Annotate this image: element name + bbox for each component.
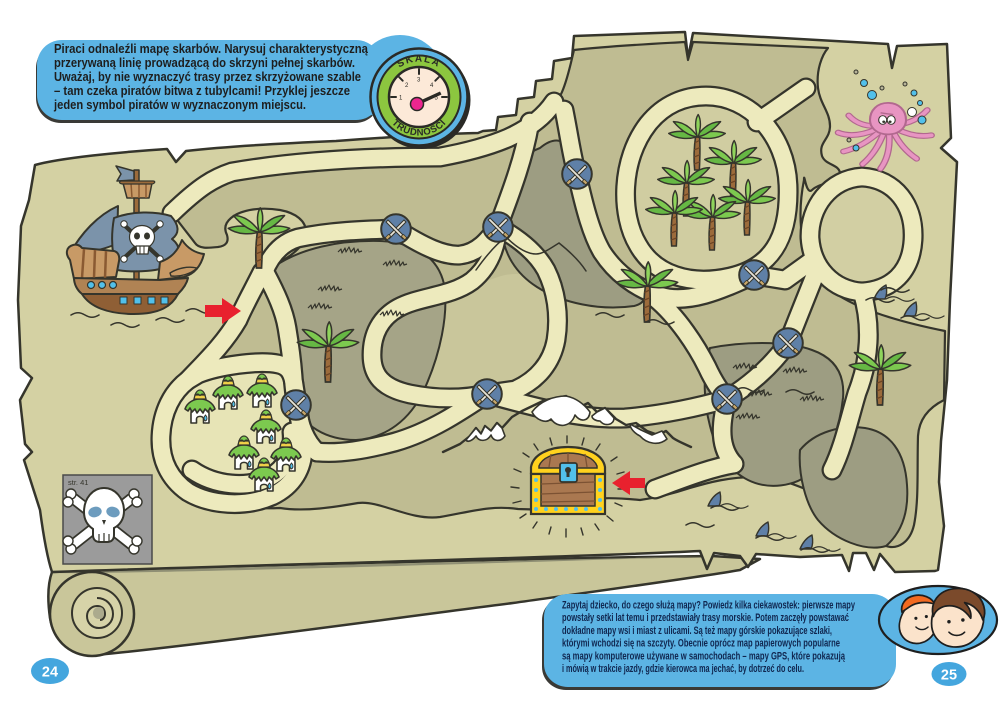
svg-text:jeden symbol piratów w wyznacz: jeden symbol piratów w wyznaczonym miejs… [53,98,306,112]
svg-text:Piraci odnaleźli mapę skarbów.: Piraci odnaleźli mapę skarbów. Narysuj c… [54,42,369,56]
svg-text:dokładne mapy wsi i miast z ul: dokładne mapy wsi i miast z ulicami. Są … [562,625,832,637]
svg-text:którymi wchodzi się na szczyty: którymi wchodzi się na szczyty. Obecnie … [562,638,840,650]
svg-text:Zapytaj dziecko, do czego służ: Zapytaj dziecko, do czego służą mapy? Po… [562,600,855,612]
svg-text:Uważaj, by nie wyznaczyć trasy: Uważaj, by nie wyznaczyć trasy przez skr… [54,70,361,84]
svg-text:– tam czeka piratów bitwa z tu: – tam czeka piratów bitwa z tubylcami! P… [54,84,350,98]
svg-text:są mapy komputerowe używane w: są mapy komputerowe używane w samochodac… [562,650,846,662]
svg-text:przerywaną linię prowadzącą do: przerywaną linię prowadzącą do skrzyni p… [54,56,355,70]
svg-text:powstały setki lat temu i prze: powstały setki lat temu i przedstawiały … [562,612,849,624]
svg-text:24: 24 [42,665,58,681]
svg-text:i mówią w trakcie jazdy, gdzie: i mówią w trakcie jazdy, gdzie kierowca … [562,663,804,675]
svg-text:str. 41: str. 41 [68,478,88,487]
svg-text:25: 25 [941,668,957,684]
